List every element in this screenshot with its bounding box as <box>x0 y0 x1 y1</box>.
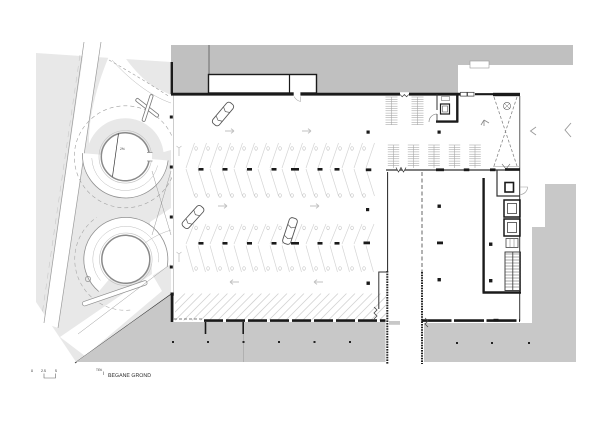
svg-text:BEGANE GROND: BEGANE GROND <box>108 373 151 379</box>
svg-text:2.5: 2.5 <box>41 369 46 373</box>
svg-text:2%: 2% <box>120 147 125 151</box>
svg-text:TEK: TEK <box>96 368 103 372</box>
svg-text:0: 0 <box>31 369 33 373</box>
svg-text:5: 5 <box>55 369 57 373</box>
